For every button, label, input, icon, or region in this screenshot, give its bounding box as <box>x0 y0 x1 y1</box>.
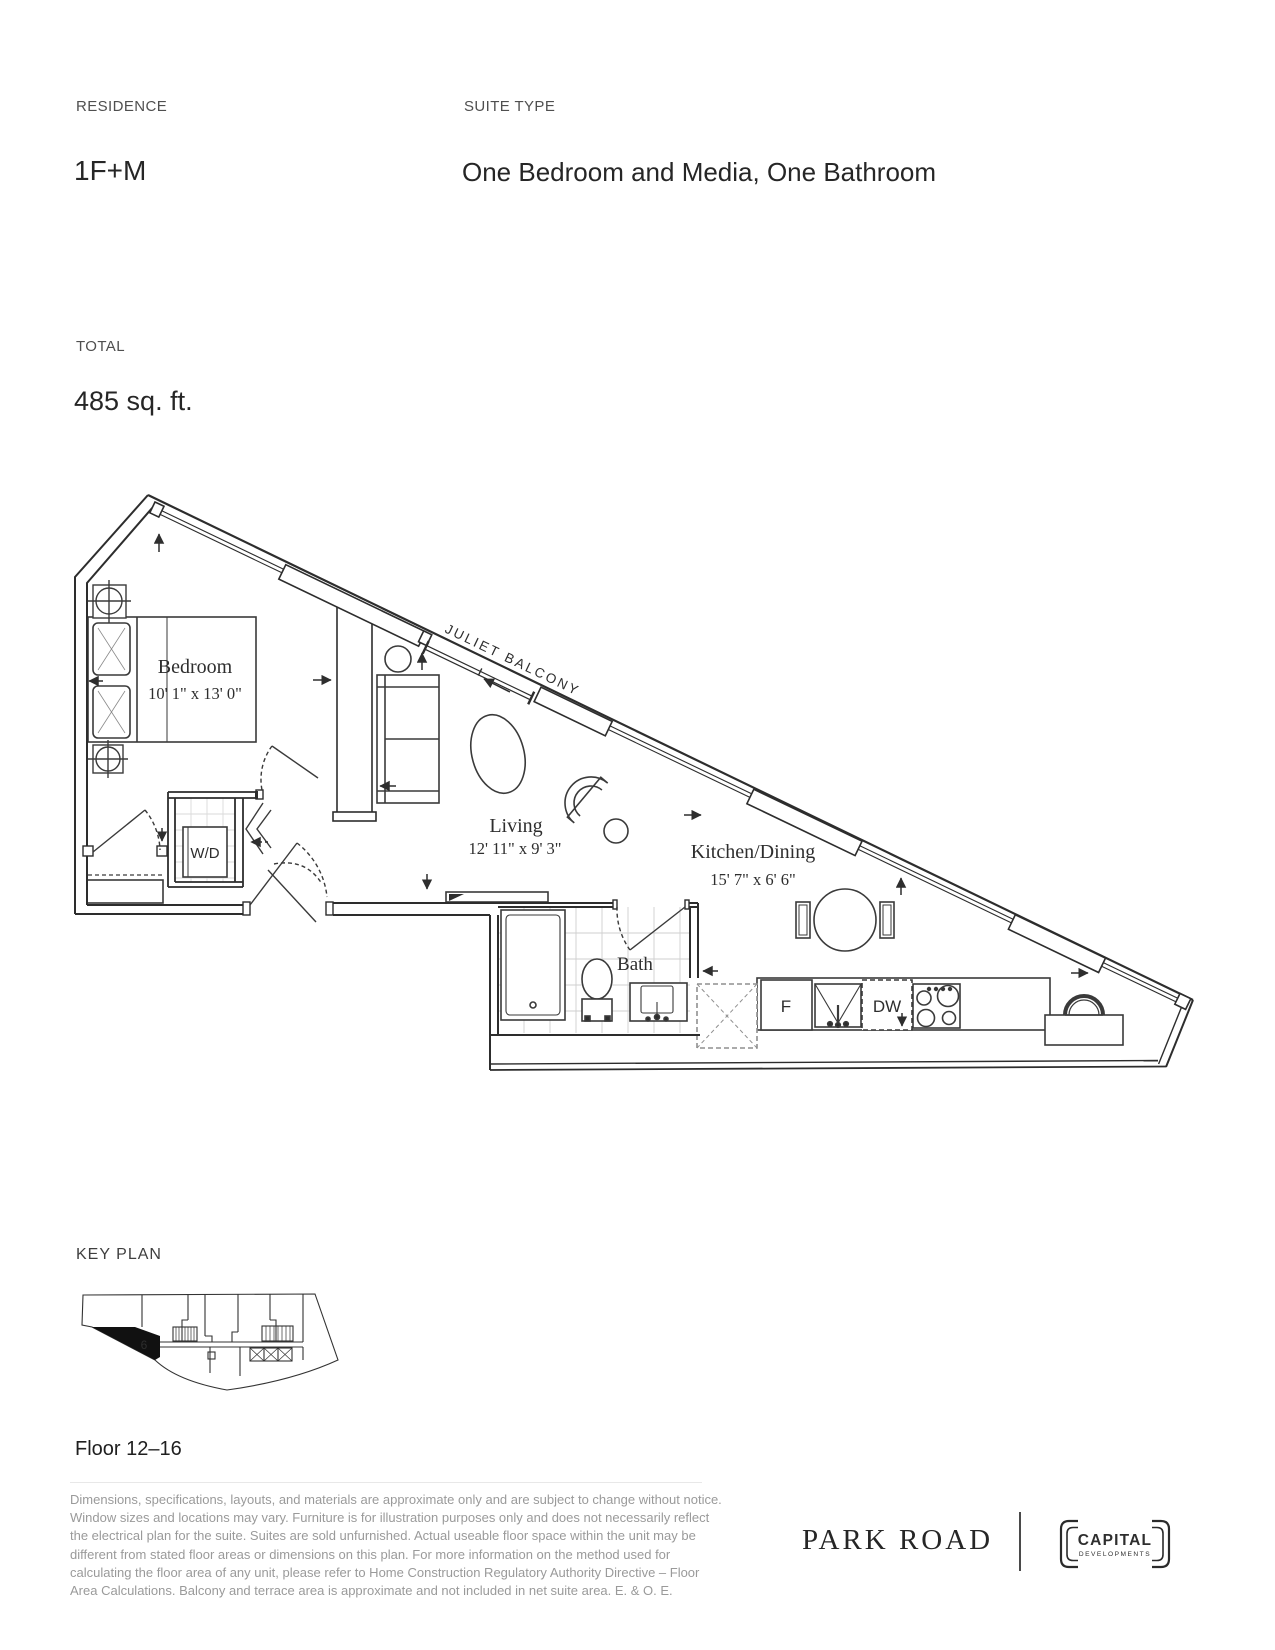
washer-dryer-label: W/D <box>190 845 219 862</box>
footer-divider <box>1019 1512 1021 1571</box>
residence-value: 1F+M <box>74 155 146 187</box>
room-label-kitchen-dining: Kitchen/Dining <box>691 841 815 863</box>
key-plan-unit-highlight <box>92 1327 160 1360</box>
bedroom-wall <box>333 605 376 821</box>
coffee-table <box>463 709 534 800</box>
kitchen-sink <box>815 984 861 1027</box>
entry-closet <box>87 875 163 903</box>
column-symbol <box>88 580 131 623</box>
fridge-label: F <box>781 997 791 1016</box>
window-wall <box>148 495 1193 1009</box>
lounge-chair <box>554 766 607 823</box>
kitchen-counter <box>757 978 1050 1030</box>
dining-chair-inner <box>799 905 807 935</box>
floorplan-sheet: RESIDENCE 1F+M SUITE TYPE One Bedroom an… <box>0 0 1275 1650</box>
kitchen-island <box>1045 996 1123 1045</box>
door-jambs <box>83 790 689 915</box>
ottoman <box>604 819 628 843</box>
dishwasher-label: DW <box>873 997 901 1016</box>
logo-text-capital: CAPITAL <box>1078 1532 1152 1549</box>
suite-type-label: SUITE TYPE <box>464 98 555 115</box>
column-symbol <box>88 740 128 778</box>
room-label-bedroom: Bedroom <box>158 656 233 678</box>
bath-door <box>617 907 685 950</box>
cooktop <box>913 984 960 1028</box>
entry-console <box>446 892 548 902</box>
floorplan-drawing: Bedroom 10' 1" x 13' 0" Living 12' 11" x… <box>60 440 1210 1080</box>
logo-bracket-inner-left <box>1067 1528 1078 1561</box>
residence-label: RESIDENCE <box>76 98 167 115</box>
closet-door <box>93 810 160 852</box>
bed <box>88 617 256 742</box>
toilet <box>582 959 612 1021</box>
room-dims-bedroom: 10' 1" x 13' 0" <box>148 684 242 703</box>
bedroom-door <box>261 746 318 790</box>
laundry-bifold-door <box>246 803 271 854</box>
park-road-logo: PARK ROAD <box>802 1524 993 1557</box>
key-plan-label: KEY PLAN <box>76 1246 162 1264</box>
pantry-closet <box>697 984 757 1048</box>
room-dims-living: 12' 11" x 9' 3" <box>468 839 561 858</box>
disclaimer-text: Dimensions, specifications, layouts, and… <box>70 1491 725 1600</box>
divider-rule <box>70 1482 702 1483</box>
total-value: 485 sq. ft. <box>74 386 193 417</box>
dining-chair-inner <box>883 905 891 935</box>
key-plan-unit-number: 6 <box>141 1338 148 1352</box>
key-plan-drawing: 6 <box>60 1280 380 1410</box>
sofa <box>377 675 439 803</box>
key-plan-elevators <box>250 1348 292 1361</box>
room-label-living: Living <box>489 815 542 837</box>
media-door <box>268 863 322 922</box>
floor-range: Floor 12–16 <box>75 1438 182 1461</box>
dining-table <box>796 889 894 951</box>
capital-developments-logo: CAPITAL DEVELOPMENTS <box>1058 1519 1172 1569</box>
logo-bracket-inner-right <box>1152 1528 1163 1561</box>
bathtub <box>501 910 565 1020</box>
room-dims-kitchen-dining: 15' 7" x 6' 6" <box>710 870 795 889</box>
side-table <box>385 646 411 672</box>
total-label: TOTAL <box>76 338 125 355</box>
bath-vanity <box>630 983 687 1021</box>
room-label-bath: Bath <box>617 954 653 975</box>
logo-text-developments: DEVELOPMENTS <box>1079 1551 1151 1558</box>
suite-type-value: One Bedroom and Media, One Bathroom <box>462 157 936 188</box>
